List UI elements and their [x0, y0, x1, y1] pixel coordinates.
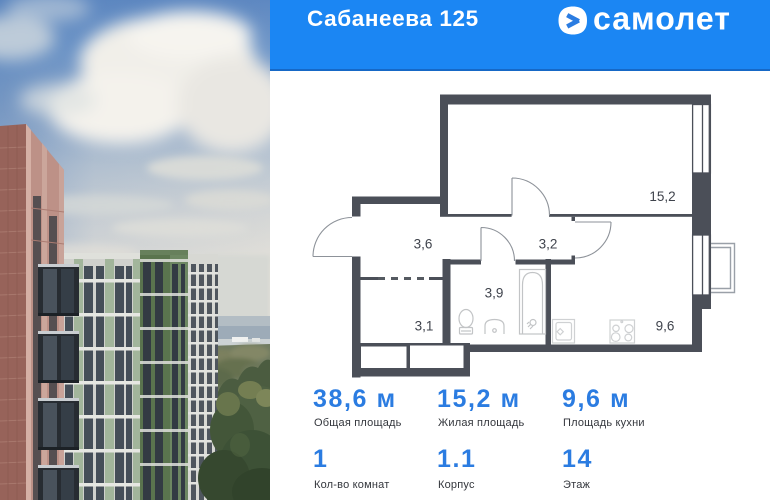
svg-text:9,6: 9,6 [656, 319, 675, 334]
svg-text:15,2: 15,2 [649, 189, 675, 204]
svg-text:самолет: самолет [593, 1, 731, 37]
svg-text:3,1: 3,1 [415, 319, 434, 334]
svg-text:3,9: 3,9 [485, 286, 504, 301]
svg-text:3,6: 3,6 [414, 237, 433, 252]
svg-text:3,2: 3,2 [539, 237, 558, 252]
